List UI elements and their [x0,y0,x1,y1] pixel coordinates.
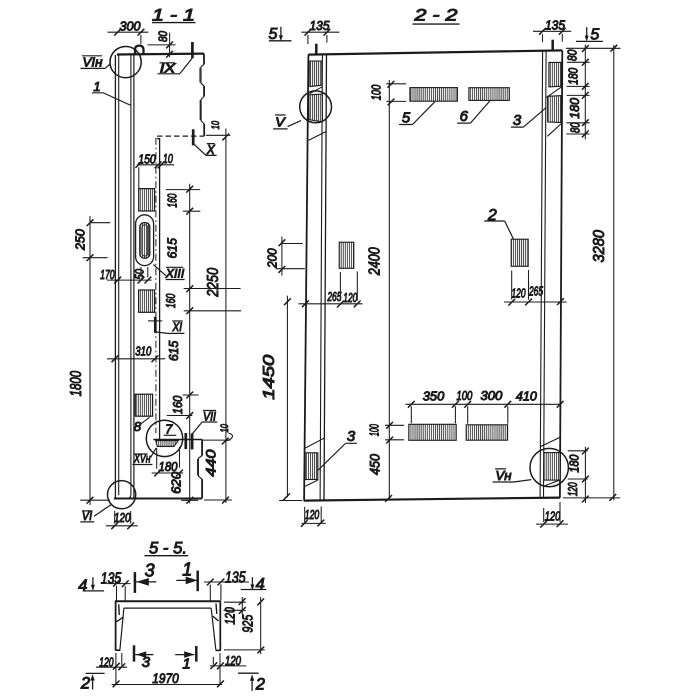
svg-text:VIн: VIн [83,55,103,70]
svg-text:5 - 5.: 5 - 5. [149,539,187,557]
svg-text:615: 615 [167,341,181,362]
svg-text:100: 100 [370,85,384,101]
svg-text:7: 7 [165,422,173,437]
svg-text:925: 925 [240,614,257,632]
svg-text:1 - 1: 1 - 1 [152,6,195,25]
svg-text:XVн: XVн [133,454,151,466]
svg-text:100: 100 [367,424,381,436]
svg-text:120: 120 [343,291,357,305]
svg-text:10: 10 [163,152,173,166]
svg-text:300: 300 [120,19,141,33]
svg-text:180: 180 [159,460,178,474]
svg-text:2: 2 [80,674,90,692]
svg-text:1: 1 [182,655,190,672]
svg-text:440: 440 [204,449,219,477]
svg-text:10: 10 [210,120,222,129]
svg-text:135: 135 [310,19,330,33]
svg-text:160: 160 [171,396,185,415]
svg-text:160: 160 [164,294,178,309]
svg-text:120: 120 [512,286,526,300]
svg-text:3: 3 [145,560,155,580]
svg-text:350: 350 [423,390,445,404]
svg-text:4: 4 [78,577,87,595]
svg-text:180: 180 [568,98,582,119]
svg-text:120: 120 [221,607,237,625]
svg-text:XIII: XIII [165,267,185,281]
svg-text:100: 100 [456,389,472,403]
svg-text:450: 450 [368,454,383,475]
svg-text:160: 160 [165,194,179,208]
svg-text:135: 135 [101,571,122,588]
svg-text:1: 1 [93,79,100,94]
svg-text:410: 410 [516,390,537,404]
svg-text:1: 1 [182,559,192,579]
svg-text:1450: 1450 [261,354,278,399]
svg-text:265: 265 [327,290,342,304]
svg-text:135: 135 [225,570,246,587]
svg-text:50: 50 [134,268,146,279]
svg-text:80: 80 [565,50,579,62]
svg-text:5: 5 [402,109,411,126]
svg-text:2250: 2250 [205,268,222,298]
svg-text:2400: 2400 [367,247,384,276]
svg-text:180: 180 [567,68,581,85]
svg-text:300: 300 [480,389,502,403]
svg-text:XI: XI [172,320,183,334]
svg-text:2 - 2: 2 - 2 [413,6,458,25]
svg-text:8: 8 [134,419,142,434]
svg-text:265: 265 [528,284,543,298]
svg-text:3: 3 [347,428,356,445]
svg-text:80: 80 [569,123,583,134]
svg-text:2: 2 [255,675,265,693]
svg-text:V: V [275,115,286,130]
svg-text:4: 4 [256,575,265,593]
svg-text:250: 250 [74,229,88,251]
svg-text:120: 120 [566,482,580,496]
svg-text:200: 200 [266,248,280,268]
svg-text:1970: 1970 [152,671,179,686]
svg-text:3280: 3280 [591,230,608,263]
svg-text:615: 615 [165,238,179,259]
svg-text:Vн: Vн [496,469,512,483]
svg-text:10: 10 [219,423,231,432]
svg-text:VII: VII [203,409,217,423]
svg-text:6: 6 [460,108,469,125]
svg-text:310: 310 [135,344,151,358]
svg-text:80: 80 [156,31,170,42]
svg-text:1800: 1800 [68,371,85,397]
svg-text:180: 180 [567,455,581,473]
